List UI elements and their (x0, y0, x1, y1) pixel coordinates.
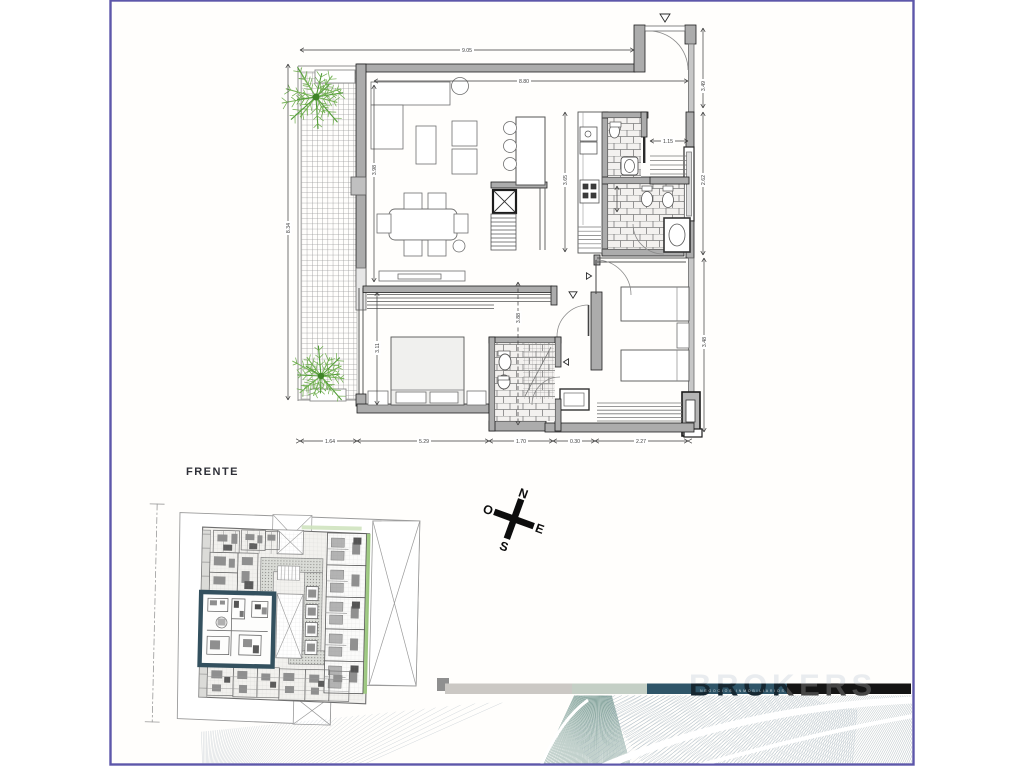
svg-text:8.34: 8.34 (286, 223, 292, 233)
svg-text:2.27: 2.27 (636, 439, 646, 445)
svg-text:0.30: 0.30 (570, 439, 580, 445)
svg-text:9.05: 9.05 (462, 48, 472, 54)
svg-text:NEGOCIOS INMOBILIARIOS: NEGOCIOS INMOBILIARIOS (700, 689, 786, 693)
svg-text:1.15: 1.15 (663, 139, 673, 145)
svg-text:3.11: 3.11 (375, 343, 381, 353)
svg-text:FRENTE: FRENTE (186, 466, 239, 478)
svg-text:3.88: 3.88 (516, 313, 522, 323)
svg-text:3.49: 3.49 (701, 81, 707, 91)
svg-text:8.80: 8.80 (519, 79, 529, 85)
svg-text:2.62: 2.62 (701, 175, 707, 185)
svg-text:3.48: 3.48 (702, 337, 708, 347)
svg-text:3.65: 3.65 (563, 175, 569, 185)
svg-text:1.64: 1.64 (325, 439, 335, 445)
svg-text:1.70: 1.70 (516, 439, 526, 445)
svg-text:3.98: 3.98 (372, 165, 378, 175)
svg-text:5.29: 5.29 (419, 439, 429, 445)
